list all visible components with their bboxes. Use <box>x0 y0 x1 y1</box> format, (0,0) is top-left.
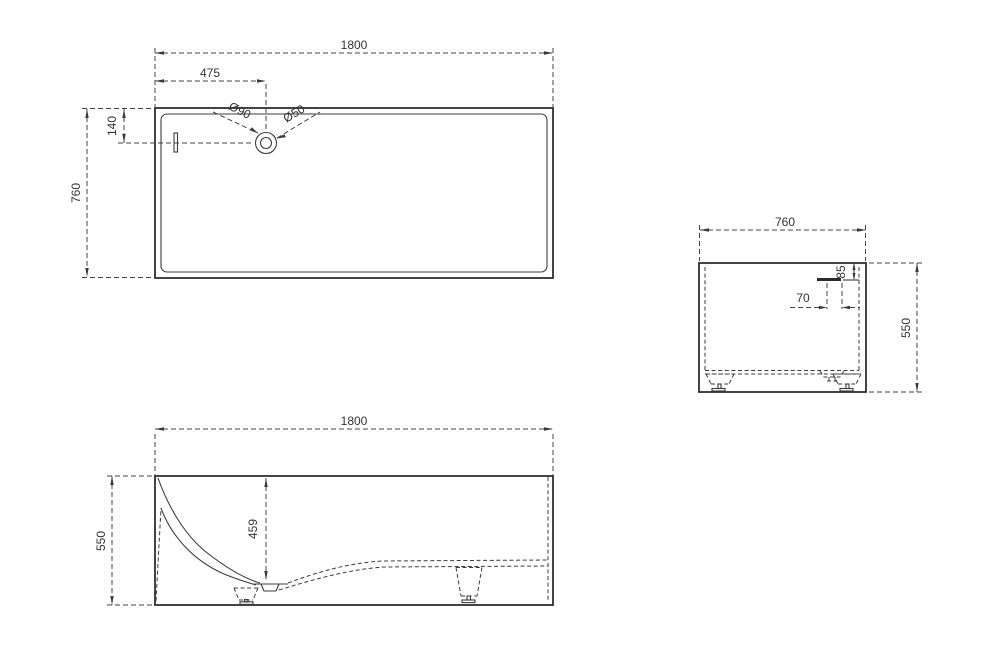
dim-overflow-offset: 70 <box>796 291 810 305</box>
arrowhead <box>277 134 287 138</box>
dim-overflow-from-top: 85 <box>834 265 848 279</box>
arrowhead <box>250 127 258 133</box>
dim-interior-depth: 459 <box>246 519 260 539</box>
dim-top-length: 1800 <box>341 38 368 52</box>
foot-bracket-right-hidden <box>833 374 861 384</box>
bottom-surface-upper-hidden <box>288 560 548 583</box>
arrowhead <box>264 571 267 580</box>
dim-side-height: 550 <box>94 531 108 551</box>
arrowhead <box>544 427 553 430</box>
arrowhead <box>155 51 164 54</box>
foot-bracket-rear-hidden <box>456 568 482 597</box>
dim-end-width: 760 <box>775 215 795 229</box>
end-view: 70 85 760 550 <box>699 215 922 392</box>
bottom-surface-lower-hidden <box>279 566 548 590</box>
drain-outer-circle <box>256 133 277 154</box>
foot-pad-rear <box>462 600 475 603</box>
arrowhead <box>110 476 113 485</box>
foot-pad-right <box>840 389 853 392</box>
interior-wall-edge-hidden <box>156 508 161 601</box>
foot-bracket-left-hidden <box>706 374 734 384</box>
foot-bracket-front-hidden <box>234 588 258 600</box>
arrowhead <box>122 134 125 143</box>
foot-pad-front <box>240 602 253 605</box>
arrowhead <box>122 109 125 118</box>
foot-leg-left <box>718 384 721 389</box>
tub-inner-rim-plan <box>161 114 547 272</box>
arrowhead <box>915 263 918 272</box>
arrowhead <box>110 596 113 605</box>
arrowhead <box>819 306 827 309</box>
arrowhead <box>264 478 267 487</box>
arrowhead <box>155 79 164 82</box>
dim-side-length: 1800 <box>341 414 368 428</box>
dim-drain-from-edge: 140 <box>105 116 119 136</box>
tub-outline-plan <box>155 108 553 278</box>
arrowhead <box>85 268 88 277</box>
arrowhead <box>155 427 164 430</box>
arrowhead <box>544 51 553 54</box>
label-drain-outer-dia: Ø90 <box>227 99 254 122</box>
arrowhead <box>85 109 88 118</box>
arrowhead <box>853 263 856 270</box>
dim-end-height: 550 <box>899 318 913 338</box>
side-view: 1800 550 459 <box>94 414 553 605</box>
arrowhead <box>257 79 266 82</box>
tub-outline-side <box>155 476 553 605</box>
interior-curve-far <box>161 508 256 585</box>
drain-fitting-side <box>254 584 288 591</box>
drain-fitting-end-hidden <box>820 371 844 381</box>
drain-inner-circle <box>261 138 272 149</box>
foot-leg-right <box>846 384 849 389</box>
foot-leg-rear <box>467 596 471 600</box>
technical-drawing-canvas: 1800 475 760 140 Ø90 Ø50 <box>0 0 1000 650</box>
label-drain-inner-dia: Ø50 <box>281 102 308 126</box>
interior-curve-near <box>158 478 260 583</box>
foot-pad-left <box>712 389 725 392</box>
bathtub-drawing: 1800 475 760 140 Ø90 Ø50 <box>0 0 1000 650</box>
dim-top-width: 760 <box>69 183 83 203</box>
arrowhead <box>853 273 856 280</box>
arrowhead <box>700 228 709 231</box>
top-view: 1800 475 760 140 Ø90 Ø50 <box>69 38 553 278</box>
arrowhead <box>857 228 866 231</box>
dim-drain-from-left: 475 <box>200 66 220 80</box>
arrowhead <box>842 306 850 309</box>
arrowhead <box>915 383 918 392</box>
tub-outline-end <box>699 263 866 392</box>
